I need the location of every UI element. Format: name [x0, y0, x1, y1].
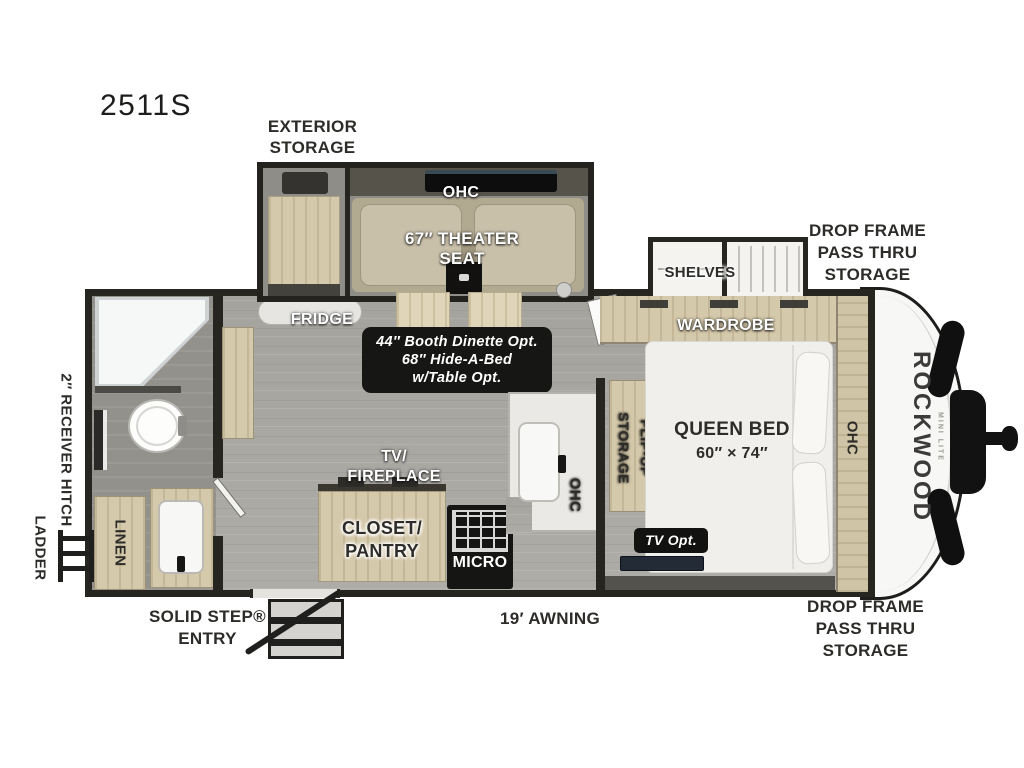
wardrobe-pull-3 — [780, 300, 808, 308]
theater-seat-label: 67″ THEATER SEAT — [370, 229, 554, 269]
awning-label: 19′ AWNING — [480, 609, 620, 630]
pillow-bottom — [791, 461, 830, 565]
shelves-label: SHELVES — [650, 264, 750, 282]
kitchen-ohc-label: OHC — [567, 478, 584, 513]
step-tread-2 — [271, 639, 341, 646]
bath-faucet — [177, 556, 185, 572]
drop-frame-top-label: DROP FRAME PASS THRU STORAGE — [795, 220, 940, 286]
range-burner-grid — [452, 510, 508, 552]
dinette-note-text: 44″ Booth Dinette Opt. 68″ Hide-A-Bed w/… — [364, 333, 550, 387]
solid-step-label: SOLID STEP® ENTRY — [140, 606, 275, 650]
bed-bench — [605, 576, 835, 590]
step-tread-1 — [271, 617, 341, 624]
shower-ledge — [95, 386, 181, 393]
flip-up-label-line2: STORAGE — [616, 412, 632, 484]
wardrobe-pull-2 — [710, 300, 738, 308]
floorplan: 2511S LINEN OHC 67″ THEATER SEAT — [0, 0, 1024, 768]
receiver-hitch-label: 2″ RECEIVER HITCH — [58, 373, 75, 526]
micro-label: MICRO — [440, 553, 520, 573]
drop-frame-bottom-label: DROP FRAME PASS THRU STORAGE — [793, 596, 938, 662]
ladder-icon — [58, 530, 94, 582]
kitchen-bedroom-wall — [596, 378, 605, 592]
brand-name: ROCKWOOD — [907, 351, 935, 523]
ladder-rung-3 — [63, 566, 89, 571]
queen-bed-label: QUEEN BED 60″ × 74″ — [652, 418, 812, 466]
slideout-ohc-label: OHC — [411, 183, 511, 203]
brand-series: MINI LITE — [937, 412, 944, 462]
exterior-storage-lid — [282, 172, 328, 194]
exterior-storage-label: EXTERIOR STORAGE — [245, 117, 380, 158]
speaker — [556, 282, 572, 298]
ladder-rung-2 — [63, 551, 89, 556]
kitchen-faucet — [558, 455, 566, 473]
ladder-rung-1 — [63, 536, 89, 541]
kitchen-counter-notch — [506, 497, 532, 534]
hitch-coupler — [1001, 426, 1018, 451]
kitchen-sink — [518, 422, 560, 502]
wardrobe-label: WARDROBE — [646, 316, 806, 336]
toilet-hinge — [178, 416, 187, 436]
tv-fireplace-label: TV/ FIREPLACE — [330, 447, 458, 487]
tall-cabinet — [222, 327, 254, 439]
bed-ohc-label: OHC — [844, 421, 861, 456]
theater-console-dot — [459, 274, 469, 281]
toilet-seat — [136, 406, 178, 446]
fridge-label: FRIDGE — [272, 310, 372, 330]
bathroom-wall-lower — [213, 536, 223, 590]
tv-screen — [620, 556, 704, 571]
model-number: 2511S — [100, 88, 220, 125]
linen-label: LINEN — [112, 520, 129, 567]
tv-opt-label: TV Opt. — [634, 532, 708, 549]
wardrobe-pull-1 — [640, 300, 668, 308]
ladder-label: LADDER — [32, 516, 49, 581]
mirror-cabinet — [94, 410, 107, 470]
exterior-storage-base — [268, 284, 340, 296]
closet-pantry-label: CLOSET/ PANTRY — [316, 517, 448, 563]
exterior-storage-cabinet — [268, 196, 340, 286]
